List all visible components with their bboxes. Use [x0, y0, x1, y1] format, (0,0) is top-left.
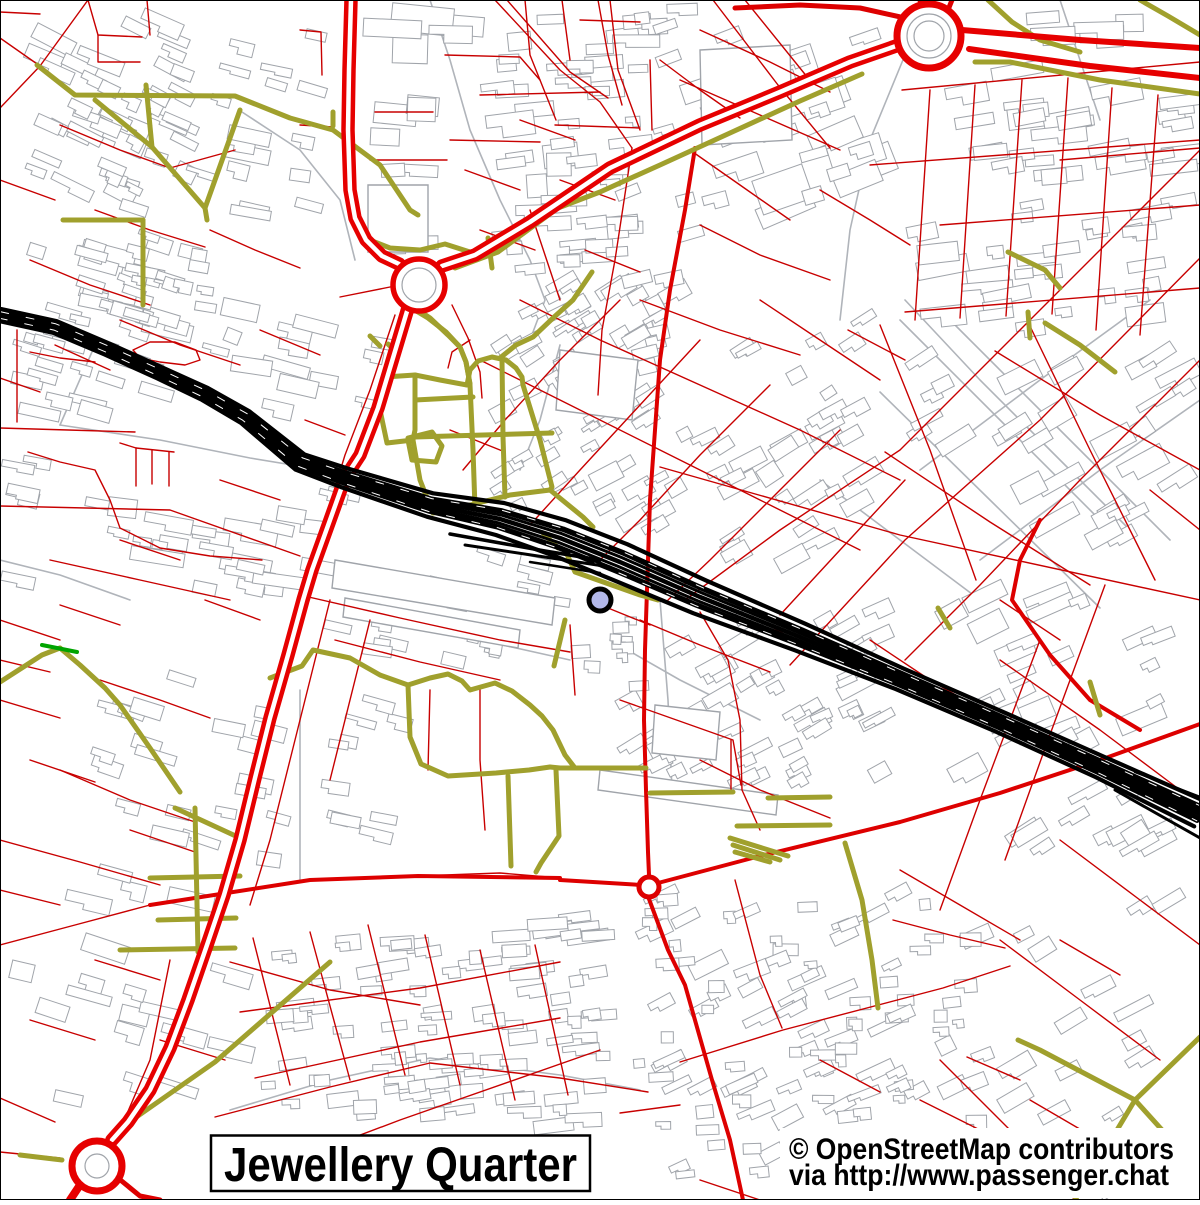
- svg-text:Jewellery Quarter: Jewellery Quarter: [224, 1139, 577, 1192]
- svg-text:via http://www.passenger.chat: via http://www.passenger.chat: [789, 1159, 1169, 1192]
